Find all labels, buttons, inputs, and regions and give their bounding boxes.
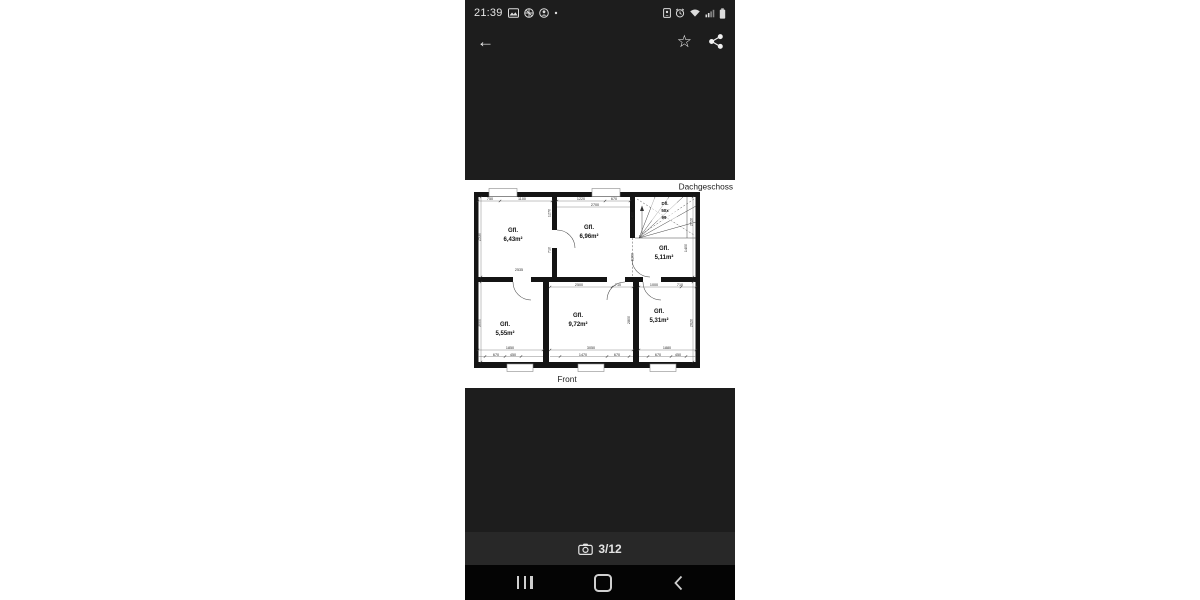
svg-text:Dfl.: Dfl. <box>661 201 668 206</box>
room-area: 5,31m² <box>649 317 668 324</box>
svg-text:670: 670 <box>614 353 620 357</box>
svg-text:2500: 2500 <box>575 283 583 287</box>
svg-text:1260: 1260 <box>631 253 635 261</box>
svg-text:710: 710 <box>548 247 552 253</box>
svg-text:1000: 1000 <box>650 283 658 287</box>
room-label: Gfl. <box>654 309 664 315</box>
battery-icon <box>719 8 726 19</box>
status-right <box>663 8 726 19</box>
account-icon <box>539 8 549 18</box>
svg-text:710: 710 <box>615 283 621 287</box>
svg-text:2700: 2700 <box>591 203 599 207</box>
svg-text:50x: 50x <box>661 208 669 213</box>
svg-text:450: 450 <box>675 353 681 357</box>
photo-counter-bar: 3/12 <box>465 532 735 565</box>
camera-icon <box>578 543 593 555</box>
svg-text:1400: 1400 <box>631 212 635 220</box>
svg-text:670: 670 <box>655 353 661 357</box>
svg-text:2720: 2720 <box>690 218 694 226</box>
room-label: Gfl. <box>508 228 518 234</box>
svg-text:1400: 1400 <box>684 244 688 252</box>
floor-title: Dachgeschoss <box>679 182 733 192</box>
svg-text:710: 710 <box>677 283 683 287</box>
svg-text:3000: 3000 <box>478 319 482 327</box>
svg-text:670: 670 <box>493 353 499 357</box>
svg-text:1100: 1100 <box>518 197 526 201</box>
svg-text:750: 750 <box>487 197 493 201</box>
home-button[interactable] <box>594 574 612 592</box>
app-notification-icon <box>524 8 534 18</box>
svg-text:2530: 2530 <box>478 233 482 241</box>
room-label: Gfl. <box>659 246 669 252</box>
screenshot-canvas: 21:39 <box>0 0 1200 600</box>
favorite-star-button[interactable]: ☆ <box>677 33 692 50</box>
svg-text:99: 99 <box>662 215 667 220</box>
svg-text:1270: 1270 <box>548 209 552 217</box>
front-label: Front <box>557 374 577 384</box>
photo-viewer-image[interactable]: Dachgeschoss <box>465 180 735 388</box>
back-nav-button[interactable] <box>674 575 683 591</box>
svg-text:1880: 1880 <box>663 346 671 350</box>
back-button[interactable]: ← <box>477 33 494 50</box>
room-label: Gfl. <box>500 322 510 328</box>
room-area: 6,43m² <box>503 236 522 243</box>
signal-icon <box>705 8 715 18</box>
svg-text:1470: 1470 <box>579 353 587 357</box>
app-bar: ← ☆ <box>465 26 735 56</box>
sim-contact-icon <box>663 8 671 18</box>
room-area: 5,55m² <box>495 330 514 337</box>
svg-text:2620: 2620 <box>690 319 694 327</box>
more-notifications-dot-icon <box>554 11 558 15</box>
gallery-icon <box>508 8 519 18</box>
room-label: Gfl. <box>573 313 583 319</box>
svg-text:2800: 2800 <box>627 316 631 324</box>
svg-text:2535: 2535 <box>515 268 523 272</box>
photo-counter-text: 3/12 <box>598 542 621 556</box>
svg-text:1850: 1850 <box>506 346 514 350</box>
floor-plan: Dachgeschoss <box>465 180 735 388</box>
room-label: Gfl. <box>584 225 594 231</box>
status-left: 21:39 <box>474 7 558 19</box>
status-bar: 21:39 <box>465 0 735 26</box>
room-area: 9,72m² <box>568 321 587 328</box>
share-button[interactable] <box>709 34 723 49</box>
alarm-icon <box>675 8 685 18</box>
room-area: 6,96m² <box>579 233 598 240</box>
app-bar-actions: ☆ <box>677 33 723 50</box>
status-time: 21:39 <box>474 7 503 19</box>
room-area: 5,11m² <box>655 254 674 261</box>
recents-button[interactable] <box>517 576 533 589</box>
svg-text:1220: 1220 <box>577 197 585 201</box>
svg-text:3050: 3050 <box>587 346 595 350</box>
svg-text:450: 450 <box>510 353 516 357</box>
phone-screen: 21:39 <box>465 0 735 600</box>
wifi-icon <box>689 8 701 18</box>
svg-text:670: 670 <box>611 197 617 201</box>
android-nav-bar <box>465 565 735 600</box>
